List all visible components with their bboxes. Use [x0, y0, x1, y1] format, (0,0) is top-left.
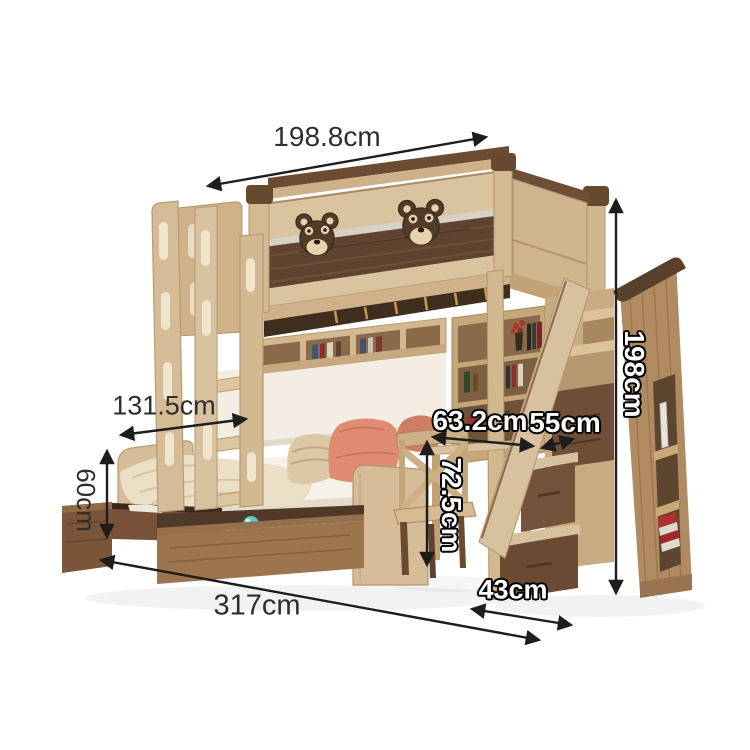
dimension-label-overall-length: 317cm [213, 592, 300, 621]
dimension-label-stair-drawer-width: 43cm [478, 577, 547, 604]
dimension-label-drawer-height: 60cm [73, 468, 99, 532]
dimension-label-lower-bed-width: 131.5cm [112, 393, 216, 420]
dimension-label-overall-width-top: 198.8cm [273, 123, 380, 151]
dimension-label-desk-area-width: 63.2cm [433, 407, 528, 435]
side-cabinet [613, 257, 692, 598]
product-dimension-image: 198.8cm 131.5cm 60cm 317cm 63.2cm 55cm 7… [0, 0, 750, 750]
dimension-label-overall-height: 198cm [620, 330, 648, 417]
dimension-label-staircase-width: 55cm [529, 409, 601, 437]
ladder [152, 201, 263, 512]
dimension-label-desk-height: 72.5cm [437, 458, 465, 553]
upper-bunk-front [264, 170, 510, 337]
